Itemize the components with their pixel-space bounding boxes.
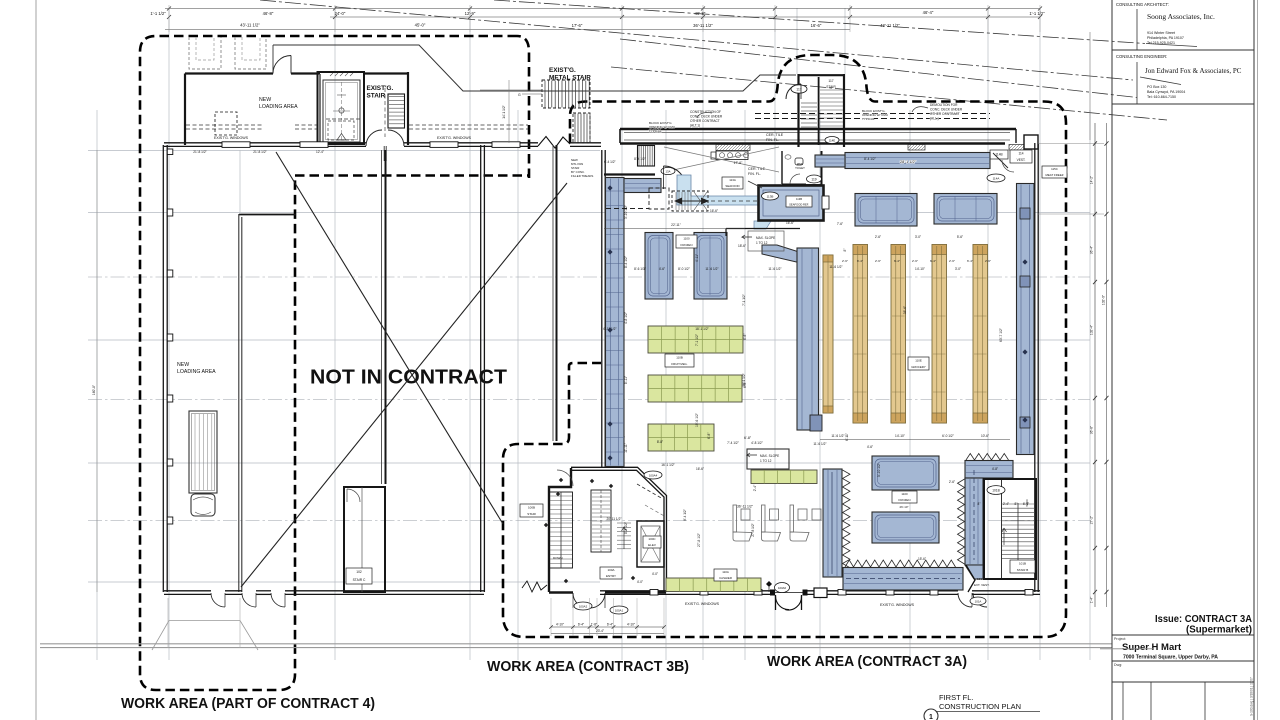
svg-text:110E: 110E (915, 358, 922, 362)
svg-text:101A: 101A (977, 577, 984, 581)
svg-text:FIN. FL.: FIN. FL. (766, 138, 779, 142)
svg-text:TYPICAL: TYPICAL (862, 117, 875, 121)
svg-text:119: 119 (811, 177, 816, 181)
svg-text:1100: 1100 (901, 492, 908, 496)
svg-text:CONC. DECK UNDER: CONC. DECK UNDER (930, 108, 963, 112)
svg-text:2'-6": 2'-6" (842, 259, 848, 263)
svg-text:24'-0": 24'-0" (335, 11, 346, 16)
svg-text:3'-0": 3'-0" (955, 267, 961, 271)
svg-text:2'-6": 2'-6" (949, 259, 955, 263)
svg-text:MEAT FREEZ: MEAT FREEZ (1045, 173, 1063, 177)
svg-text:8'-6 1/3": 8'-6 1/3" (634, 267, 646, 271)
svg-text:115C: 115C (1051, 167, 1058, 171)
svg-text:117: 117 (828, 79, 833, 83)
svg-text:14'-10": 14'-10" (895, 434, 905, 438)
svg-text:8'-4 1/2": 8'-4 1/2" (634, 157, 646, 161)
svg-text:36'-4": 36'-4" (1090, 245, 1094, 254)
svg-text:4'-0": 4'-0" (637, 580, 643, 584)
svg-text:101B: 101B (1019, 561, 1026, 565)
svg-text:36'-11 1/2": 36'-11 1/2" (737, 505, 754, 509)
svg-text:5'-6": 5'-6" (957, 235, 963, 239)
svg-text:FROZEN: FROZEN (681, 243, 693, 247)
svg-text:(ALT.1): (ALT.1) (690, 124, 700, 128)
svg-text:ELEV: ELEV (648, 543, 656, 547)
svg-text:ENTRY: ENTRY (606, 574, 616, 578)
svg-text:CONSULTING ARCHITECT:: CONSULTING ARCHITECT: (1116, 2, 1169, 7)
svg-text:3'-10 1/2": 3'-10 1/2" (624, 204, 628, 219)
svg-text:100B: 100B (528, 505, 535, 509)
svg-text:1: 1 (929, 714, 933, 720)
svg-text:SEAFOOD REF.: SEAFOOD REF. (789, 202, 809, 206)
svg-text:2'-6": 2'-6" (875, 235, 881, 239)
svg-text:STAIR C: STAIR C (353, 578, 366, 582)
svg-text:100A6: 100A6 (778, 586, 787, 590)
svg-text:WORK AREA (CONTRACT 3A): WORK AREA (CONTRACT 3A) (767, 654, 967, 670)
svg-text:Bala Cynwyd, PA 19004: Bala Cynwyd, PA 19004 (1147, 90, 1185, 94)
svg-text:1100: 1100 (683, 236, 690, 240)
svg-text:6'-4": 6'-4" (578, 623, 584, 627)
svg-text:VEST.: VEST. (1017, 158, 1026, 162)
svg-text:113B: 113B (796, 197, 802, 201)
svg-text:TOILET: TOILET (795, 166, 805, 170)
svg-text:8": 8" (1015, 502, 1018, 506)
svg-text:2'-6": 2'-6" (912, 259, 918, 263)
svg-text:4'-11": 4'-11" (695, 253, 699, 262)
svg-text:Tel 215-925-0421: Tel 215-925-0421 (1147, 41, 1175, 45)
svg-text:160'-8": 160'-8" (92, 384, 96, 395)
svg-text:1'-8": 1'-8" (591, 623, 597, 627)
svg-text:8'-4 1/2": 8'-4 1/2" (683, 509, 687, 521)
svg-text:8'-4 1/2": 8'-4 1/2" (624, 255, 628, 268)
svg-text:17'-6": 17'-6" (734, 161, 743, 165)
svg-text:38'-6": 38'-6" (903, 305, 907, 314)
svg-text:CONC. DECK UNDER: CONC. DECK UNDER (690, 115, 723, 119)
svg-text:WORK AREA (CONTRACT 3B): WORK AREA (CONTRACT 3B) (487, 659, 689, 675)
svg-text:43'-11 1/2": 43'-11 1/2" (240, 23, 260, 28)
svg-text:WORK AREA (PART OF CONTRACT 4): WORK AREA (PART OF CONTRACT 4) (121, 696, 375, 712)
svg-text:Philadelphia, PA 19107: Philadelphia, PA 19107 (1147, 36, 1184, 40)
svg-text:6'-4": 6'-4" (930, 259, 936, 263)
svg-text:2'-4": 2'-4" (1003, 502, 1009, 506)
svg-text:3'-0": 3'-0" (915, 235, 921, 239)
svg-text:914 Winter Street: 914 Winter Street (1147, 31, 1175, 35)
svg-text:100A1: 100A1 (615, 608, 624, 612)
svg-text:FILLED TREADS: FILLED TREADS (571, 174, 593, 178)
svg-text:100A: 100A (607, 568, 614, 572)
svg-text:5'-10 1/2": 5'-10 1/2" (877, 462, 881, 477)
svg-text:8'-11": 8'-11" (624, 375, 628, 384)
svg-text:FIRST FL.: FIRST FL. (939, 693, 973, 702)
svg-text:110B: 110B (676, 355, 683, 359)
svg-text:18'-6": 18'-6" (738, 244, 746, 248)
svg-text:100A4: 100A4 (649, 473, 658, 477)
svg-text:11'-6 1/2": 11'-6 1/2" (705, 267, 718, 271)
svg-text:8'-8": 8'-8" (657, 440, 663, 444)
svg-text:TYPICAL: TYPICAL (649, 129, 662, 133)
svg-text:4'-8": 4'-8" (992, 467, 998, 471)
svg-text:101A: 101A (975, 599, 982, 603)
svg-text:STAIR: STAIR (367, 93, 386, 100)
svg-text:110A: 110A (722, 570, 729, 574)
svg-text:STAIR: STAIR (826, 85, 836, 89)
svg-text:14'-1 1/2": 14'-1 1/2" (502, 105, 506, 118)
svg-text:8'-4 1/2": 8'-4 1/2" (624, 521, 628, 534)
svg-text:LOADING AREA: LOADING AREA (259, 104, 298, 110)
svg-text:FRUIT/VEG.: FRUIT/VEG. (671, 362, 687, 366)
svg-text:16'-1 1/2": 16'-1 1/2" (661, 463, 674, 467)
svg-text:46'-4": 46'-4" (923, 10, 934, 15)
svg-text:113A: 113A (729, 178, 736, 182)
svg-text:12'-4": 12'-4" (316, 150, 324, 154)
svg-text:11'-6 1/2": 11'-6 1/2" (831, 434, 844, 438)
svg-text:MAX. SLOPE: MAX. SLOPE (756, 236, 775, 240)
svg-text:GROCERY: GROCERY (911, 365, 926, 369)
svg-text:6'-4": 6'-4" (967, 259, 973, 263)
svg-text:10'-6 1/2": 10'-6 1/2" (695, 412, 699, 427)
svg-text:102: 102 (356, 570, 362, 574)
svg-text:113B: 113B (767, 194, 774, 198)
svg-text:36'-11 1/2": 36'-11 1/2" (693, 23, 713, 28)
svg-text:S-100.dwg | 3/18/01 | 11:0: S-100.dwg | 3/18/01 | 11:07 (1250, 677, 1254, 716)
svg-text:11'-6 1/2": 11'-6 1/2" (813, 442, 826, 446)
svg-text:7'-1 1/2": 7'-1 1/2" (742, 294, 746, 306)
svg-text:7'-1 1/2": 7'-1 1/2" (695, 333, 699, 346)
svg-text:11'-6 1/2": 11'-6 1/2" (829, 265, 842, 269)
svg-text:OTHER CONTRACT: OTHER CONTRACT (930, 112, 960, 116)
svg-text:Project:: Project: (1114, 637, 1126, 641)
svg-text:14'-10": 14'-10" (915, 267, 925, 271)
svg-text:8": 8" (978, 502, 981, 506)
svg-text:2'-4": 2'-4" (753, 484, 757, 491)
svg-text:16'-6": 16'-6" (710, 209, 718, 213)
svg-text:NEW: NEW (259, 97, 271, 103)
svg-text:MAX. SLOPE: MAX. SLOPE (760, 454, 779, 458)
svg-text:SEAFOOD: SEAFOOD (725, 184, 739, 188)
svg-text:100A2: 100A2 (579, 604, 588, 608)
svg-text:FROZEN: FROZEN (899, 498, 911, 502)
svg-text:EXIST'G. WINDOWS: EXIST'G. WINDOWS (437, 136, 472, 140)
svg-text:1 TO 12: 1 TO 12 (756, 241, 768, 245)
svg-text:Super H Mart: Super H Mart (1122, 642, 1182, 653)
svg-text:17'-6": 17'-6" (572, 23, 583, 28)
svg-text:27'-8 1/2": 27'-8 1/2" (697, 532, 701, 547)
svg-text:2'-6": 2'-6" (949, 480, 955, 484)
svg-text:Tel: 610-664-7150: Tel: 610-664-7150 (1147, 95, 1176, 99)
svg-text:EXIST'G. WINDOWS: EXIST'G. WINDOWS (880, 603, 915, 607)
svg-text:60'-7 1/2": 60'-7 1/2" (999, 327, 1003, 342)
svg-text:Soong Associates, Inc.: Soong Associates, Inc. (1147, 12, 1215, 21)
svg-text:16'-6": 16'-6" (696, 467, 704, 471)
svg-text:15'-6": 15'-6" (918, 557, 926, 561)
svg-text:4'-6": 4'-6" (659, 267, 665, 271)
svg-text:CONSULTING ENGINEER:: CONSULTING ENGINEER: (1116, 54, 1167, 59)
svg-text:11'-6 1/2": 11'-6 1/2" (768, 267, 781, 271)
svg-text:LOADING AREA: LOADING AREA (177, 369, 216, 375)
svg-text:13A: 13A (666, 169, 671, 173)
svg-text:6'-4": 6'-4" (857, 259, 863, 263)
svg-text:DOWN: DOWN (553, 556, 563, 560)
svg-text:Jon Edward Fox & Associates, P: Jon Edward Fox & Associates, PC (1145, 67, 1242, 75)
svg-text:16'-1 1/2": 16'-1 1/2" (742, 373, 746, 386)
svg-text:2'-6": 2'-6" (875, 259, 881, 263)
svg-text:23'-4": 23'-4" (596, 629, 604, 633)
svg-text:STAIR: STAIR (527, 512, 536, 516)
svg-text:27'-8 1/2": 27'-8 1/2" (751, 523, 755, 536)
svg-text:STAIR B: STAIR B (1017, 568, 1028, 572)
svg-text:4'-10": 4'-10" (556, 623, 564, 627)
svg-text:6'-8": 6'-8" (743, 334, 747, 340)
svg-text:20'-11 1/2": 20'-11 1/2" (607, 517, 622, 521)
svg-text:FIN. FL.: FIN. FL. (748, 172, 761, 176)
svg-text:26'-10": 26'-10" (900, 505, 909, 509)
svg-text:22'-11": 22'-11" (671, 223, 681, 227)
svg-text:EXIST'G. WINDOWS: EXIST'G. WINDOWS (685, 602, 720, 606)
svg-text:1'-1 1/2": 1'-1 1/2" (1029, 11, 1045, 16)
svg-text:4'-0": 4'-0" (652, 572, 658, 576)
svg-text:8'-0 1/2": 8'-0 1/2" (678, 267, 690, 271)
svg-text:PO Box 130: PO Box 130 (1147, 85, 1166, 89)
svg-text:114: 114 (1018, 151, 1023, 155)
svg-text:21'-8 1/2": 21'-8 1/2" (193, 150, 206, 154)
svg-text:100C: 100C (648, 537, 656, 541)
svg-text:114A: 114A (993, 176, 1000, 180)
svg-text:EXIST'G.: EXIST'G. (549, 67, 576, 74)
svg-text:1'-4": 1'-4" (1090, 596, 1094, 603)
svg-text:12'-9": 12'-9" (465, 11, 476, 16)
svg-text:6'-4": 6'-4" (607, 623, 613, 627)
svg-text:G: G (518, 93, 521, 97)
svg-text:6'-11": 6'-11" (845, 433, 849, 441)
svg-text:7'-4 1/2": 7'-4 1/2" (727, 441, 739, 445)
svg-text:2'-6": 2'-6" (985, 259, 991, 263)
svg-text:6'-8": 6'-8" (744, 436, 752, 440)
svg-text:6'-4": 6'-4" (1023, 502, 1029, 506)
svg-text:1'-1 1/2": 1'-1 1/2" (150, 11, 166, 16)
svg-text:27'-2": 27'-2" (1090, 515, 1094, 524)
svg-text:DEMOLITION FOR: DEMOLITION FOR (930, 103, 958, 107)
svg-text:Dwg:: Dwg: (1114, 663, 1122, 667)
svg-text:6'-8": 6'-8" (707, 433, 711, 439)
svg-text:7'-6": 7'-6" (837, 222, 843, 226)
svg-text:6'-4": 6'-4" (894, 259, 900, 263)
svg-text:4'-6": 4'-6" (867, 445, 873, 449)
svg-text:10'-6": 10'-6" (981, 434, 989, 438)
svg-text:NEW: NEW (177, 362, 189, 368)
svg-text:102'-4": 102'-4" (1090, 324, 1094, 335)
svg-text:21'-8 1/2": 21'-8 1/2" (253, 150, 266, 154)
svg-text:4'-8 1/2": 4'-8 1/2" (751, 441, 763, 445)
svg-text:4'-10": 4'-10" (627, 623, 635, 627)
svg-text:1 TO 12: 1 TO 12 (760, 459, 772, 463)
svg-text:114E: 114E (829, 138, 835, 142)
svg-text:(Supermarket): (Supermarket) (1186, 624, 1252, 636)
svg-text:16'-6": 16'-6" (811, 23, 822, 28)
svg-text:8'-4 1/2": 8'-4 1/2" (864, 157, 876, 161)
svg-text:OTHER CONTRACT: OTHER CONTRACT (690, 119, 720, 123)
svg-text:7000 Terminal Square, Upper: 7000 Terminal Square, Upper Darby, PA (1123, 655, 1218, 661)
svg-text:CER. TILE: CER. TILE (748, 167, 766, 171)
svg-text:6'-4 1/2": 6'-4 1/2" (604, 160, 616, 164)
svg-text:28'-1 1/2": 28'-1 1/2" (900, 160, 917, 164)
svg-text:14'-2": 14'-2" (1090, 175, 1094, 184)
svg-text:36'-8": 36'-8" (1090, 425, 1094, 434)
svg-text:16'-6": 16'-6" (786, 221, 794, 225)
svg-text:46'-8": 46'-8" (263, 11, 274, 16)
svg-text:4'-8 1/2": 4'-8 1/2" (624, 311, 628, 324)
svg-text:45'-0": 45'-0" (415, 23, 426, 28)
svg-text:CONSTRUCTION PLAN: CONSTRUCTION PLAN (939, 702, 1021, 711)
svg-text:CONSTRUCTION OF: CONSTRUCTION OF (690, 110, 721, 114)
svg-text:EXIST'G.: EXIST'G. (367, 85, 394, 92)
svg-text:102'-0": 102'-0" (1102, 294, 1106, 305)
svg-text:CASHIER: CASHIER (719, 576, 732, 580)
svg-text:101B: 101B (992, 488, 999, 492)
svg-text:EXT. VEST.: EXT. VEST. (974, 583, 990, 587)
svg-text:11'-11": 11'-11" (624, 442, 628, 453)
svg-text:18'-1 1/2": 18'-1 1/2" (695, 327, 708, 331)
svg-text:6'-0 1/2": 6'-0 1/2" (942, 434, 954, 438)
svg-text:CER. TILE: CER. TILE (766, 133, 784, 137)
svg-text:(ALL.): (ALL.) (930, 117, 939, 121)
svg-text:EXIST'G. WINDOWS: EXIST'G. WINDOWS (214, 136, 249, 140)
